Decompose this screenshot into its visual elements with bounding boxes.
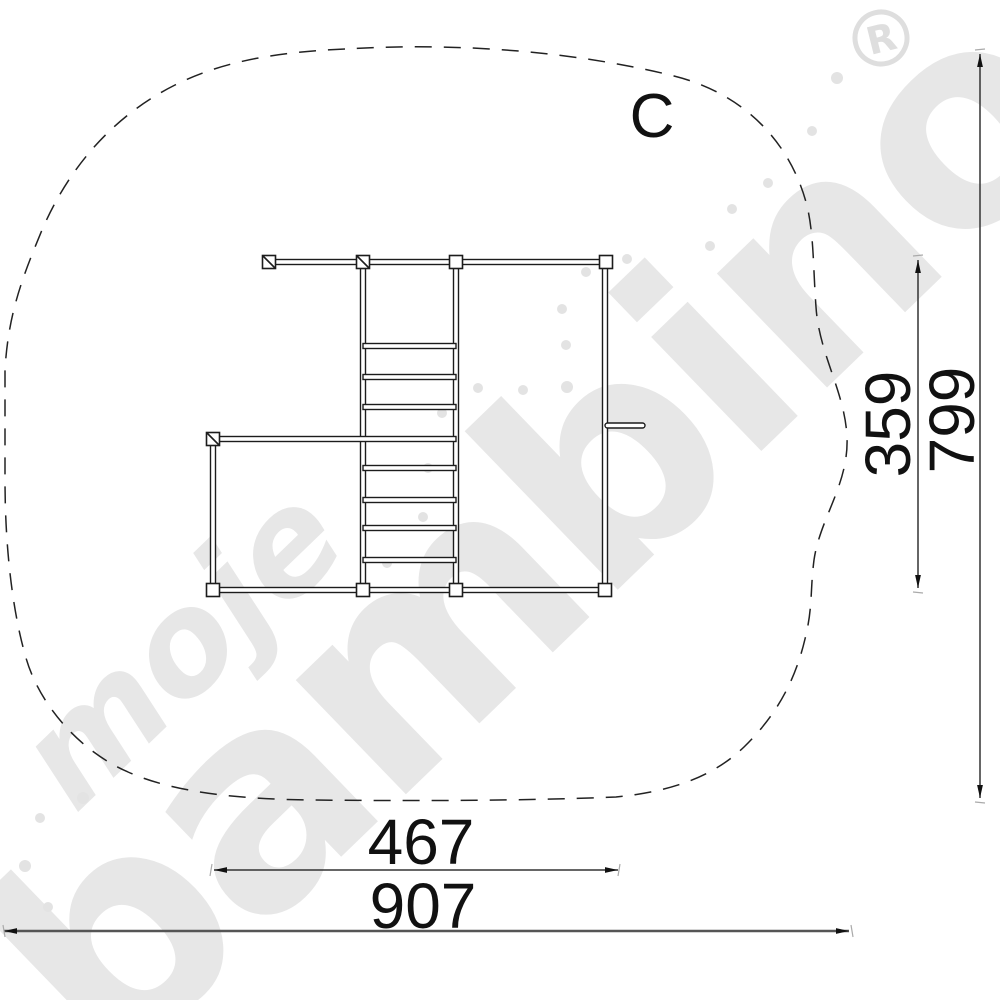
- top-beam: [269, 260, 606, 265]
- post-node: [450, 584, 463, 597]
- ladder-rung: [363, 498, 456, 503]
- ladder-rung: [363, 526, 456, 531]
- post-node-anchored: [207, 433, 220, 446]
- technical-plan-canvas: moje bambino R: [0, 0, 1000, 1000]
- plan-drawing: moje bambino R: [0, 0, 1000, 1000]
- post-node: [357, 584, 370, 597]
- ladder-rung: [363, 558, 456, 563]
- post-node: [207, 584, 220, 597]
- post-node-anchored: [357, 256, 370, 269]
- ladder-rung: [363, 344, 456, 349]
- dimension-outer-width-value: 907: [370, 870, 477, 942]
- bottom-beam: [213, 588, 605, 593]
- ladder-rung: [363, 466, 456, 471]
- post-node: [600, 256, 613, 269]
- brand-watermark: moje bambino R: [0, 0, 1000, 1000]
- ladder-right-rail: [454, 262, 459, 590]
- dimension-inner-height-value: 359: [852, 371, 924, 478]
- plan-variant-label: C: [630, 82, 675, 151]
- ladder-left-rail: [361, 262, 366, 590]
- watermark-word-bambino: bambino: [0, 0, 1000, 1000]
- post-node-anchored: [263, 256, 276, 269]
- post-node: [599, 584, 612, 597]
- platform-left-beam: [211, 439, 216, 590]
- platform-top-beam: [213, 437, 456, 442]
- side-handle-bar: [605, 423, 645, 428]
- dimension-outer-height-value: 799: [916, 367, 988, 474]
- ladder-rung: [363, 405, 456, 410]
- post-node: [450, 256, 463, 269]
- dimension-inner-width-value: 467: [368, 806, 475, 878]
- ladder-rung: [363, 375, 456, 380]
